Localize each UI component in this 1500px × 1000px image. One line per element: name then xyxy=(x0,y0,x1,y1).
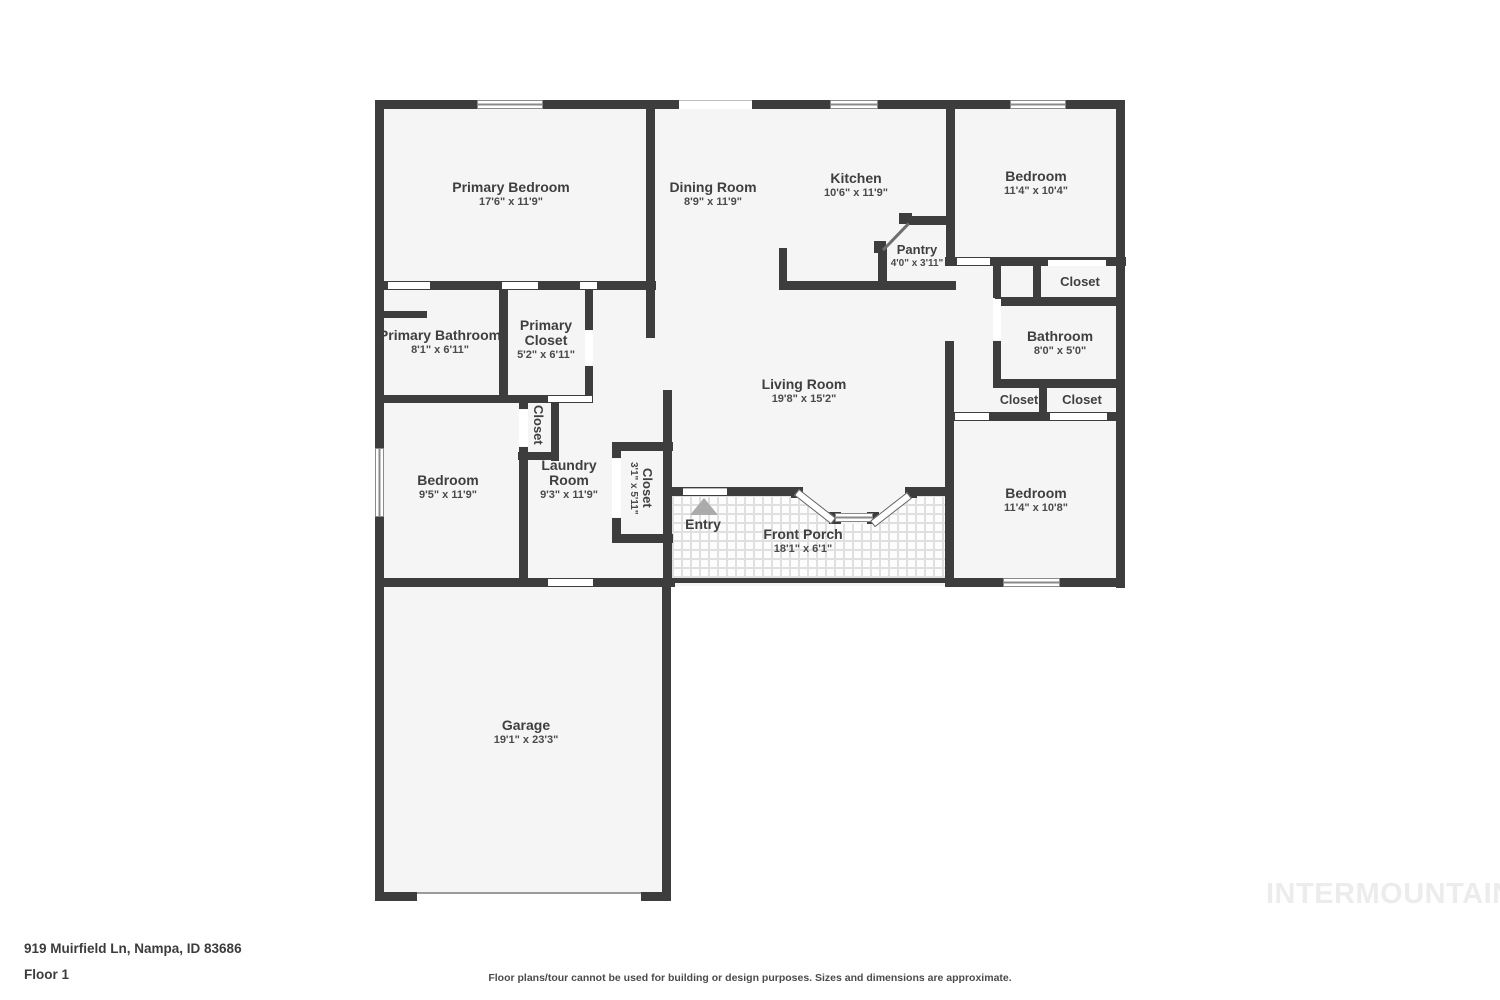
window xyxy=(477,100,543,109)
room-label-bathroom: Bathroom 8'0" x 5'0" xyxy=(1027,329,1093,358)
room-label-front-porch: Front Porch 18'1" x 6'1" xyxy=(763,527,842,556)
room-label-primary-bathroom: Primary Bathroom 8'1" x 6'11" xyxy=(379,328,501,357)
room-label-bedroom-left: Bedroom 9'5" x 11'9" xyxy=(417,473,478,502)
wall-segment xyxy=(1116,100,1125,588)
wall-segment xyxy=(519,395,528,409)
room-label-laundry-room: Laundry Room 9'3" x 11'9" xyxy=(521,458,617,502)
room-label-pantry: Pantry 4'0" x 3'11" xyxy=(891,242,944,271)
wall-segment xyxy=(519,410,528,446)
room-label-living-room: Living Room 19'8" x 15'2" xyxy=(762,377,847,406)
wall-segment xyxy=(779,248,787,290)
wall-segment xyxy=(779,281,956,290)
room-label-entry: Entry xyxy=(685,517,721,532)
wall-segment xyxy=(957,258,990,265)
room-label-kitchen: Kitchen 10'6" x 11'9" xyxy=(824,171,888,200)
room-label-garage: Garage 19'1" x 23'3" xyxy=(494,718,559,747)
floor-plan: Primary Bedroom 17'6" x 11'9" Dining Roo… xyxy=(0,0,1500,1000)
room-label-bedroom-top-right: Bedroom 11'4" x 10'4" xyxy=(1004,169,1068,198)
wall-segment xyxy=(646,100,655,338)
bay-window-center xyxy=(835,513,873,522)
wall-segment xyxy=(502,282,538,289)
wall-segment xyxy=(548,579,593,586)
wall-segment xyxy=(955,413,989,420)
wall-segment xyxy=(1048,260,1106,266)
wall-segment xyxy=(683,488,727,495)
wall-segment xyxy=(548,396,592,402)
wall-segment xyxy=(906,216,950,225)
room-label-bedroom-bottom-right: Bedroom 11'4" x 10'8" xyxy=(1004,486,1068,515)
wall-segment xyxy=(899,213,912,224)
wall-segment xyxy=(1050,413,1107,420)
garage-door xyxy=(417,892,641,901)
wall-segment xyxy=(946,100,955,266)
room-label-primary-bedroom: Primary Bedroom 17'6" x 11'9" xyxy=(452,180,569,209)
wall-segment xyxy=(995,379,1125,388)
window xyxy=(1010,100,1066,109)
wall-segment xyxy=(612,442,673,451)
room-label-closet-hall-left: Closet xyxy=(1000,393,1038,408)
wall-segment xyxy=(375,311,427,318)
wall-segment xyxy=(388,282,430,289)
wall-segment xyxy=(993,264,1001,298)
room-label-closet-entry: Closet 3'1" x 5'11" xyxy=(626,462,655,515)
wall-segment xyxy=(580,282,597,289)
wall-segment xyxy=(612,442,621,458)
intermountain-watermark: INTERMOUNTAIN xyxy=(1266,878,1500,911)
wall-segment xyxy=(585,366,593,398)
window xyxy=(679,100,752,109)
wall-segment xyxy=(612,534,673,543)
room-label-primary-closet: Primary Closet 5'2" x 6'11" xyxy=(500,318,592,362)
disclaimer-text: Floor plans/tour cannot be used for buil… xyxy=(488,972,1011,984)
wall-segment xyxy=(995,297,1125,306)
room-label-closet-bedroom-left: Closet xyxy=(531,405,546,445)
room-label-dining-room: Dining Room 8'9" x 11'9" xyxy=(669,180,756,209)
floor-plan-page: Primary Bedroom 17'6" x 11'9" Dining Roo… xyxy=(0,0,1500,1000)
entry-arrow-icon xyxy=(690,498,718,515)
floor-label: Floor 1 xyxy=(24,967,69,982)
wall-segment xyxy=(993,299,1001,340)
wall-segment xyxy=(672,578,948,583)
wall-segment xyxy=(662,578,671,901)
wall-segment xyxy=(375,578,675,587)
window xyxy=(1003,578,1060,587)
room-label-closet-top-right: Closet xyxy=(1060,274,1100,289)
property-address: 919 Muirfield Ln, Nampa, ID 83686 xyxy=(24,941,242,956)
window xyxy=(375,448,384,517)
room-label-closet-hall-right: Closet xyxy=(1062,392,1102,407)
wall-segment xyxy=(612,518,621,543)
window xyxy=(830,100,878,109)
wall-segment xyxy=(945,341,954,587)
